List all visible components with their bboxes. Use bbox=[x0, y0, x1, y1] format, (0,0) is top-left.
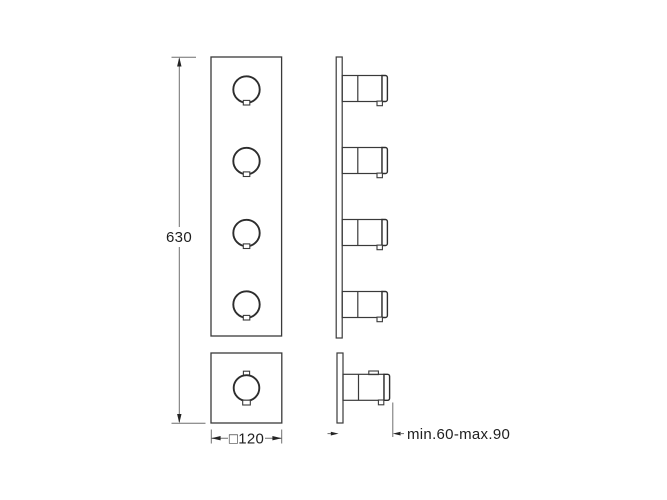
height-arrow-up bbox=[177, 57, 181, 66]
height-dimension-label: 630 bbox=[166, 229, 192, 246]
drawing-svg: 630 □120 min.60-max.90 bbox=[0, 0, 667, 500]
side-handle-1-body bbox=[342, 76, 382, 102]
side-handle-2-tab bbox=[377, 173, 382, 178]
side-handle-2-cap bbox=[382, 148, 387, 174]
side-handle-3-body bbox=[342, 220, 382, 246]
dimension-width-120: □120 bbox=[211, 430, 281, 448]
side-handle-1-tab bbox=[377, 101, 382, 106]
side-handle-4-body bbox=[342, 292, 382, 318]
side-handle-3-tab bbox=[377, 245, 382, 250]
dimension-depth-min60-max90: min.60-max.90 bbox=[328, 403, 511, 444]
side-handle-4-tab bbox=[377, 317, 382, 322]
depth-dimension-label: min.60-max.90 bbox=[407, 426, 510, 443]
width-dimension-label: □120 bbox=[229, 431, 264, 448]
side-handle-1 bbox=[342, 76, 387, 106]
knob-stem-4 bbox=[243, 315, 250, 320]
side-view-square-plate bbox=[337, 353, 390, 423]
square-knob-circle bbox=[234, 375, 260, 401]
depth-arrow-left bbox=[331, 432, 339, 436]
width-arrow-left bbox=[211, 436, 220, 440]
side-square-handle-cap bbox=[384, 374, 390, 400]
knob-circle-4 bbox=[233, 291, 259, 317]
side-handle-1-cap bbox=[382, 76, 387, 102]
front-view-square-plate bbox=[211, 353, 282, 423]
technical-drawing-page: 630 □120 min.60-max.90 bbox=[0, 0, 667, 500]
knob-circle-3 bbox=[233, 220, 259, 246]
dimension-height-630: 630 bbox=[166, 57, 205, 423]
side-handle-4 bbox=[342, 292, 387, 322]
side-handle-4-cap bbox=[382, 292, 387, 318]
width-arrow-right bbox=[272, 436, 281, 440]
side-square-handle-bottom-tab bbox=[378, 400, 383, 405]
depth-arrow-right bbox=[393, 432, 401, 436]
knob-stem-1 bbox=[243, 100, 250, 105]
knob-stem-2 bbox=[243, 172, 250, 177]
front-view-long-plate bbox=[211, 57, 282, 336]
side-view-long-plate bbox=[336, 57, 387, 338]
side-plate-profile bbox=[336, 57, 342, 338]
square-knob-bottom-tab bbox=[243, 400, 251, 405]
knob-stem-3 bbox=[243, 244, 250, 249]
height-arrow-down bbox=[177, 414, 181, 423]
knob-circle-2 bbox=[233, 148, 259, 174]
side-handle-2 bbox=[342, 148, 387, 178]
knob-circle-1 bbox=[233, 76, 259, 102]
side-handle-2-body bbox=[342, 148, 382, 174]
side-square-plate-profile bbox=[337, 353, 343, 423]
side-handle-3 bbox=[342, 220, 387, 250]
side-handle-3-cap bbox=[382, 220, 387, 246]
side-square-handle-body bbox=[343, 374, 384, 400]
